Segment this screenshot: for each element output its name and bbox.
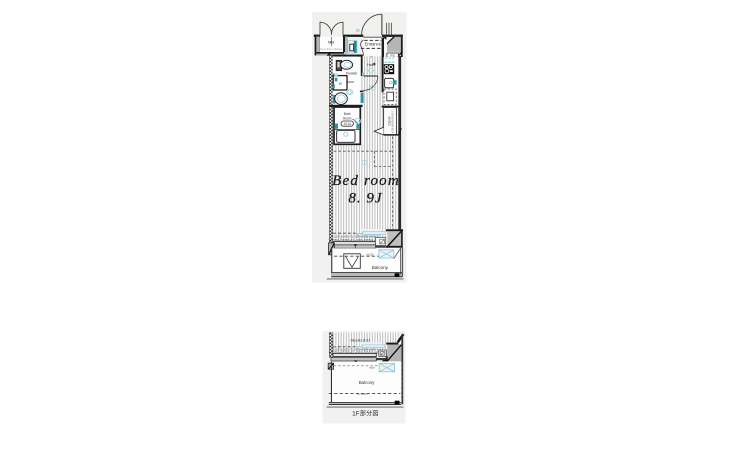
svg-text:hatch: hatch bbox=[369, 366, 376, 369]
svg-text:1014: 1014 bbox=[343, 122, 351, 126]
svg-text:MB: MB bbox=[328, 40, 334, 45]
svg-text:Bed room: Bed room bbox=[332, 173, 400, 189]
svg-text:Studio 8.9J: Studio 8.9J bbox=[350, 337, 370, 342]
svg-text:Hall: Hall bbox=[367, 63, 373, 67]
svg-text:w=11000: w=11000 bbox=[357, 392, 368, 396]
svg-text:Balcony: Balcony bbox=[359, 380, 375, 385]
svg-text:W: W bbox=[339, 82, 342, 86]
svg-text:n750 W800xH2400 CL: n750 W800xH2400 CL bbox=[391, 108, 394, 133]
svg-text:Powder: Powder bbox=[346, 72, 358, 76]
svg-text:w1650: w1650 bbox=[366, 253, 374, 256]
svg-text:Room: Room bbox=[343, 117, 352, 121]
svg-text:Balcony: Balcony bbox=[372, 265, 389, 270]
svg-text:PS: PS bbox=[391, 54, 395, 58]
svg-text:Entrance: Entrance bbox=[365, 42, 382, 47]
svg-text:Gas+Elec+Water: Gas+Elec+Water bbox=[320, 47, 342, 51]
svg-text:Bath: Bath bbox=[344, 112, 351, 116]
svg-text:8. 9J: 8. 9J bbox=[348, 190, 383, 206]
svg-text:1F部分図: 1F部分図 bbox=[352, 409, 379, 417]
